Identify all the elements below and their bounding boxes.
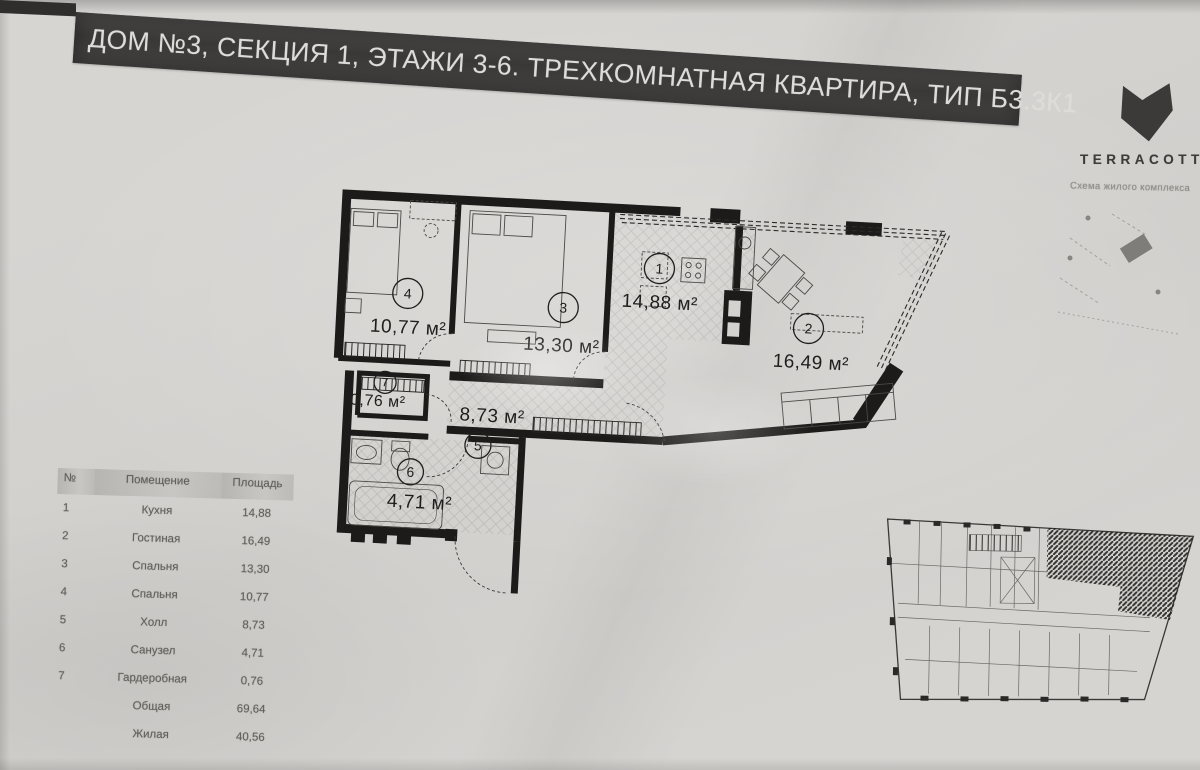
cell-num: 1 xyxy=(56,494,93,523)
room-area: 10,77 м² xyxy=(369,316,446,341)
cell-num: 4 xyxy=(54,578,91,607)
room-number: 5 xyxy=(474,437,483,453)
cell-num: 5 xyxy=(53,606,90,635)
cell-num xyxy=(50,718,87,747)
cell-area: 13,30 xyxy=(219,555,292,585)
highlighted-apartment xyxy=(1046,528,1194,621)
cell-name: Кухня xyxy=(93,495,221,527)
cell-area: 14,88 xyxy=(220,499,293,529)
scanned-floorplan-page: ДОМ №3, СЕКЦИЯ 1, ЭТАЖИ 3-6. ТРЕХКОМНАТН… xyxy=(0,0,1200,770)
cell-name: Спальня xyxy=(91,551,219,583)
cell-area: 0,76 xyxy=(215,666,288,696)
room-number: 3 xyxy=(559,299,568,315)
key-plan xyxy=(884,519,1193,705)
cell-name: Гардеробная xyxy=(88,663,216,695)
room-area: 8,73 м² xyxy=(459,404,525,428)
cell-area: 10,77 xyxy=(218,583,291,613)
tiled-floor-terrace-corner xyxy=(897,237,941,281)
cell-area: 16,49 xyxy=(219,527,292,557)
room-area: 0,76 м² xyxy=(350,392,406,412)
cell-name: Санузел xyxy=(89,635,217,667)
cell-num: 2 xyxy=(56,522,93,551)
room-number: 7 xyxy=(381,375,389,389)
header-area: Площадь xyxy=(221,473,294,501)
header-name: Помещение xyxy=(94,469,222,499)
cell-area: 4,71 xyxy=(216,639,289,669)
cell-name: Жилая xyxy=(87,719,215,751)
cell-name: Гостиная xyxy=(92,523,220,555)
room-area: 4,71 м² xyxy=(386,491,452,515)
apartment-plan: 1 2 3 4 5 6 7 14,88 м² 16,49 м² 13,30 м²… xyxy=(326,189,950,615)
cell-num: 3 xyxy=(55,550,92,579)
cell-area: 40,56 xyxy=(214,722,287,752)
cell-num: 7 xyxy=(52,662,89,691)
vent-shaft xyxy=(722,290,753,345)
room-number: 1 xyxy=(655,260,664,276)
room-area: 16,49 м² xyxy=(772,351,849,376)
cell-num xyxy=(51,690,88,719)
header-num: № xyxy=(57,468,94,495)
room-number: 2 xyxy=(804,320,813,336)
cell-num: 6 xyxy=(53,634,90,663)
room-number: 6 xyxy=(406,464,415,480)
cell-name: Спальня xyxy=(91,579,219,611)
cell-name: Холл xyxy=(90,607,218,639)
cell-name: Общая xyxy=(88,691,216,723)
cell-area: 8,73 xyxy=(217,611,290,641)
room-number: 4 xyxy=(403,285,412,301)
cell-area: 69,64 xyxy=(215,694,288,724)
room-area: 14,88 м² xyxy=(621,291,698,316)
room-legend-table: № Помещение Площадь 1 Кухня 14,88 2 Гост… xyxy=(50,468,294,752)
room-area: 13,30 м² xyxy=(523,334,600,359)
